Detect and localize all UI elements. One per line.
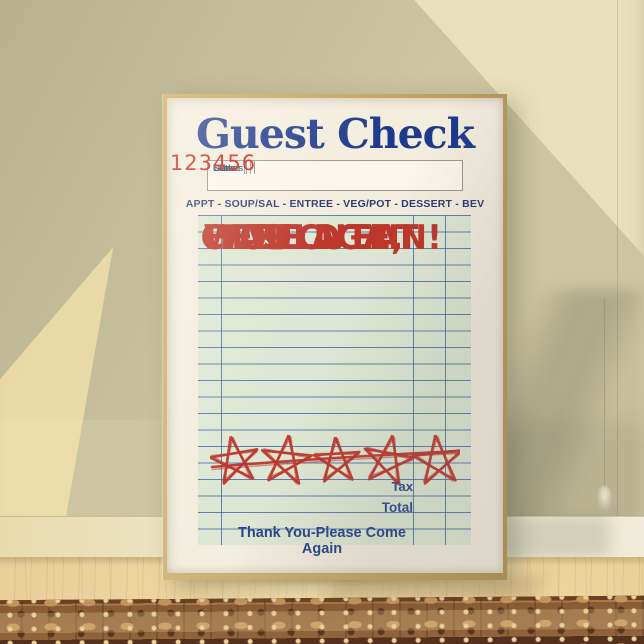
tax-label: Tax bbox=[327, 479, 413, 494]
room-scene: Guest Check Date Table Guests Server 123… bbox=[0, 0, 644, 644]
total-label: Total bbox=[327, 500, 413, 515]
star-icon bbox=[365, 435, 414, 484]
poster-paper: Guest Check Date Table Guests Server 123… bbox=[167, 98, 503, 573]
rug bbox=[0, 596, 644, 644]
header-table: Date Table Guests Server 123456 bbox=[207, 160, 463, 191]
cord-tassel bbox=[597, 486, 612, 510]
check-number-cell: 123456 bbox=[208, 161, 213, 163]
poster-frame: Guest Check Date Table Guests Server 123… bbox=[163, 94, 507, 580]
footer-thanks: Thank You-Please Come Again bbox=[222, 525, 422, 557]
receipt-grid bbox=[198, 215, 471, 545]
page-title: Guest Check bbox=[167, 114, 503, 155]
check-number: 123456 bbox=[170, 151, 256, 175]
message-line: HERE AGAIN! bbox=[204, 213, 442, 263]
hanging-cord bbox=[604, 298, 605, 494]
menu-categories: APPT - SOUP/SAL - ENTREE - VEG/POT - DES… bbox=[167, 198, 503, 210]
baseboard-shadow bbox=[500, 516, 610, 558]
wall-seam bbox=[617, 0, 618, 518]
